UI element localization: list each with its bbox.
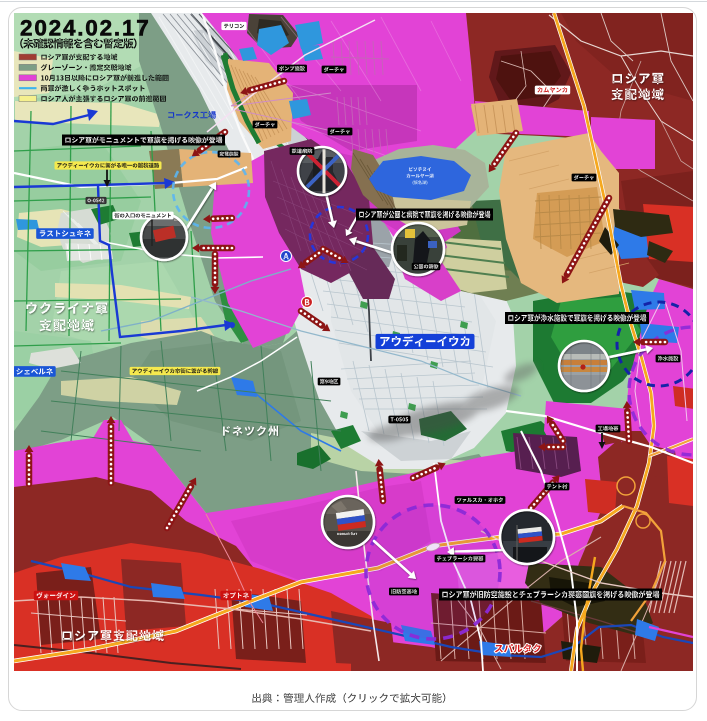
svg-text:2024.02.17: 2024.02.17 (20, 16, 151, 41)
